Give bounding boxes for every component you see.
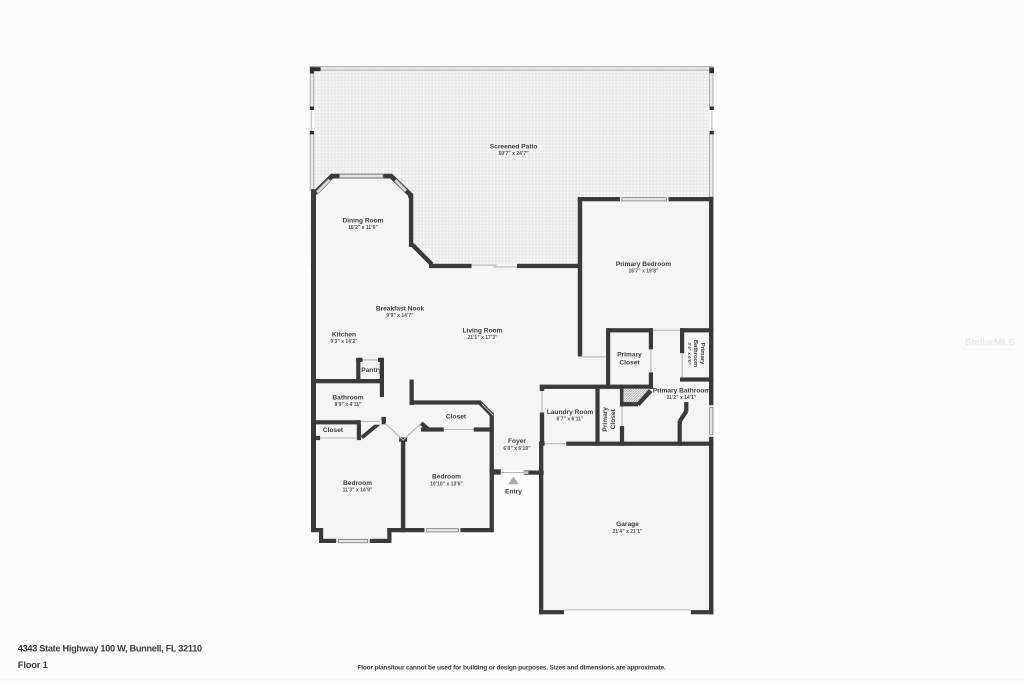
svg-text:50’7” x 24’7”: 50’7” x 24’7” <box>499 151 530 157</box>
svg-text:Closet: Closet <box>610 408 617 429</box>
svg-text:9’9” x 14’7”: 9’9” x 14’7” <box>386 313 414 319</box>
svg-text:Bedroom: Bedroom <box>432 474 461 481</box>
svg-text:Dining Room: Dining Room <box>342 217 383 224</box>
svg-text:Kitchen: Kitchen <box>332 331 356 338</box>
svg-text:Closet: Closet <box>619 360 640 367</box>
svg-text:9’3” x 14’2”: 9’3” x 14’2” <box>330 339 358 345</box>
svg-text:3’4” x 6’0”: 3’4” x 6’0” <box>687 342 692 364</box>
svg-text:Primary Bathroom: Primary Bathroom <box>653 387 711 394</box>
svg-text:10’10” x 13’6”: 10’10” x 13’6” <box>430 481 463 487</box>
svg-text:Entry: Entry <box>505 489 522 496</box>
svg-text:Pantry: Pantry <box>361 367 382 374</box>
svg-text:Closet: Closet <box>323 427 344 434</box>
svg-text:Bathroom: Bathroom <box>692 340 698 367</box>
svg-text:15’2” x 11’6”: 15’2” x 11’6” <box>348 225 378 231</box>
svg-text:6’7” x 6’11”: 6’7” x 6’11” <box>557 417 584 423</box>
svg-text:21’1” x 17’3”: 21’1” x 17’3” <box>467 335 498 341</box>
svg-text:Living Room: Living Room <box>463 327 503 334</box>
svg-text:Primary: Primary <box>617 352 642 359</box>
svg-text:Screened Patio: Screened Patio <box>490 143 538 150</box>
svg-text:Closet: Closet <box>446 414 467 421</box>
svg-text:Primary: Primary <box>699 343 705 365</box>
svg-text:StellarMLS: StellarMLS <box>965 337 1016 349</box>
svg-text:16’7” x 19’8”: 16’7” x 19’8” <box>628 269 659 275</box>
svg-text:Bathroom: Bathroom <box>332 395 363 402</box>
svg-text:11’3” x 14’9”: 11’3” x 14’9” <box>343 488 373 494</box>
svg-text:6’0” x 6’10”: 6’0” x 6’10” <box>503 446 531 452</box>
svg-text:Laundry Room: Laundry Room <box>547 409 594 416</box>
svg-text:Primary: Primary <box>602 407 609 432</box>
svg-text:Bedroom: Bedroom <box>343 480 372 487</box>
svg-text:21’4” x 21’1”: 21’4” x 21’1” <box>612 529 643 535</box>
svg-text:Floor 1: Floor 1 <box>18 659 48 670</box>
svg-text:Breakfast Nook: Breakfast Nook <box>376 305 425 312</box>
svg-text:8’9” x 4’11”: 8’9” x 4’11” <box>335 402 362 408</box>
svg-text:Floor plans/tour cannot be use: Floor plans/tour cannot be used for buil… <box>357 665 666 672</box>
svg-text:Primary Bedroom: Primary Bedroom <box>616 261 671 268</box>
svg-text:4343 State Highway 100 W, Bunn: 4343 State Highway 100 W, Bunnell, FL 32… <box>18 644 202 654</box>
svg-text:Foyer: Foyer <box>508 438 526 445</box>
svg-text:Garage: Garage <box>616 521 639 528</box>
svg-text:11’2” x 14’1”: 11’2” x 14’1” <box>667 395 697 401</box>
